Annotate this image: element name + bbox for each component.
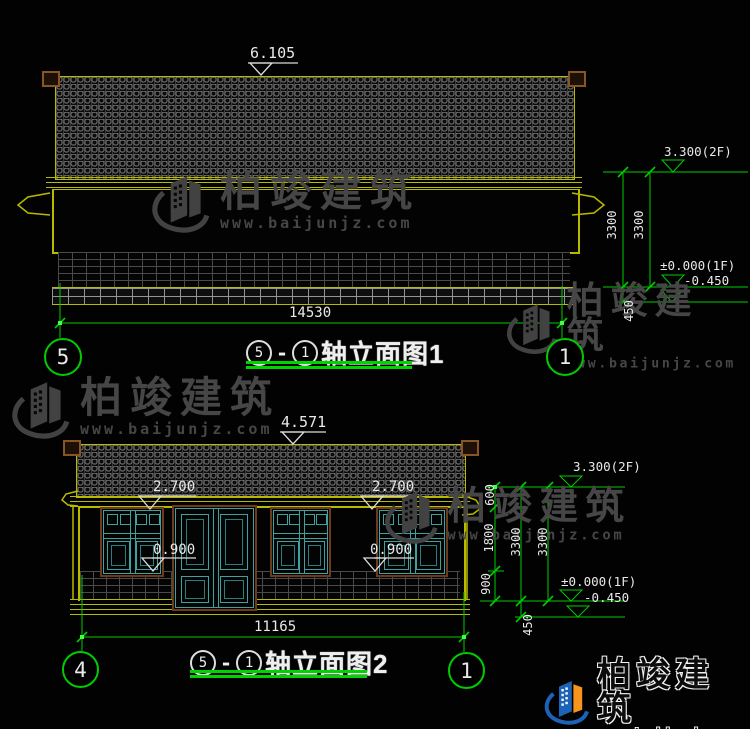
watermark-url-text: www.baijunjz.com (80, 420, 280, 438)
lattice-pane (120, 514, 131, 525)
door-lower-panel (220, 576, 249, 603)
window-pane (277, 541, 298, 571)
d2-vdim-3300-b: 3300 (537, 519, 549, 565)
d2-window-sill-dim-right: 0.900 (370, 543, 412, 557)
building1-plinth (52, 287, 576, 305)
building2-roof-cap-right (461, 440, 479, 456)
d2-vdim-3300-a: 3300 (510, 519, 522, 565)
watermark-brand-text: 柏竣建筑 (567, 283, 736, 353)
d2-width-dimension: 11165 (254, 620, 296, 634)
watermark-4: 柏竣建筑 www.baijunjz.com (383, 486, 631, 545)
brand-logo: 柏竣建筑 www.baijunjz.com (543, 658, 750, 729)
d1-grid-bubble-1: 1 (546, 338, 584, 376)
d2-vdim-450: 450 (522, 608, 534, 642)
watermark-logo-icon (150, 170, 212, 234)
building2-base-bands (70, 599, 470, 615)
d2-grid-bubble-1: 1 (448, 652, 485, 689)
building1-brick-wall (58, 252, 570, 288)
watermark-brand-text: 柏竣建筑 (80, 378, 280, 418)
d2-grid-bubble-4: 4 (62, 651, 99, 688)
lattice-pane (289, 514, 300, 525)
building2-roof-cap-left (63, 440, 81, 456)
window-pane (107, 541, 129, 571)
lattice-pane (136, 514, 147, 525)
watermark-logo-icon (10, 376, 72, 440)
door-leaf-left (179, 509, 211, 607)
d1-width-dimension: 14530 (289, 306, 331, 320)
door-glass-panel (220, 514, 249, 570)
d2-level-2f: 3.300(2F) (573, 461, 641, 474)
d1-title-underline (246, 361, 412, 371)
watermark-brand-text: 柏竣建筑 (220, 172, 420, 212)
d1-vdim-3300-a: 3300 (606, 202, 618, 248)
lattice-pane (304, 514, 315, 525)
watermark-text-block: 柏竣建筑 www.baijunjz.com (220, 172, 420, 232)
brand-logo-icon (543, 675, 591, 727)
lattice-pane (316, 514, 327, 525)
brand-logo-name: 柏竣建筑 (597, 658, 750, 726)
d1-grid-bubble-5: 5 (44, 338, 82, 376)
watermark-text-block: 柏竣建筑 www.baijunjz.com (80, 378, 280, 438)
d2-window-head-dim-right: 2.700 (372, 480, 414, 494)
lattice-pane (107, 514, 118, 525)
d1-level-2f: 3.300(2F) (664, 146, 732, 159)
watermark-2: 柏竣建筑 www.baijunjz.com (505, 283, 736, 371)
building1-roof-tiles (55, 76, 575, 180)
d2-window-sill-dim-left: 0.900 (153, 543, 195, 557)
d2-level-1f: ±0.000(1F) (561, 576, 636, 589)
building1-roof-cap-right (568, 71, 586, 87)
building1-roof-cap-left (42, 71, 60, 87)
d2-vdim-600: 600 (484, 478, 496, 512)
d2-window-head-dim-left: 2.700 (153, 480, 195, 494)
window-rail (274, 533, 327, 539)
cad-elevation-sheet: 6.105 14530 3.300(2F) ±0.000(1F) -0.450 … (0, 0, 750, 729)
d1-level-base: -0.450 (684, 275, 729, 288)
window-rail (104, 533, 160, 539)
watermark-url-text: www.baijunjz.com (220, 214, 420, 232)
d2-top-elevation: 4.571 (281, 415, 326, 430)
d1-level-1f: ±0.000(1F) (660, 260, 735, 273)
d2-vdim-900: 900 (480, 567, 492, 601)
door-lower-panel (181, 576, 210, 603)
d2-title-underline (190, 670, 367, 680)
lattice-pane (149, 514, 160, 525)
d1-vdim-450: 450 (623, 294, 635, 328)
door-leaf-right (218, 509, 250, 607)
d1-top-elevation: 6.105 (250, 46, 295, 61)
lattice-pane (277, 514, 288, 525)
d2-vdim-1800: 1800 (483, 518, 495, 558)
window-pane (416, 541, 441, 571)
building2-entry-door (172, 505, 257, 611)
window-pane (304, 541, 325, 571)
d1-vdim-3300-b: 3300 (633, 202, 645, 248)
watermark-url-text: www.baijunjz.com (567, 355, 736, 371)
building2-window-2 (270, 507, 331, 577)
d2-level-base: -0.450 (584, 592, 629, 605)
brand-logo-text-block: 柏竣建筑 www.baijunjz.com (597, 658, 750, 729)
watermark-1: 柏竣建筑 www.baijunjz.com (150, 170, 420, 234)
watermark-3: 柏竣建筑 www.baijunjz.com (10, 376, 280, 440)
watermark-text-block: 柏竣建筑 www.baijunjz.com (567, 283, 736, 371)
